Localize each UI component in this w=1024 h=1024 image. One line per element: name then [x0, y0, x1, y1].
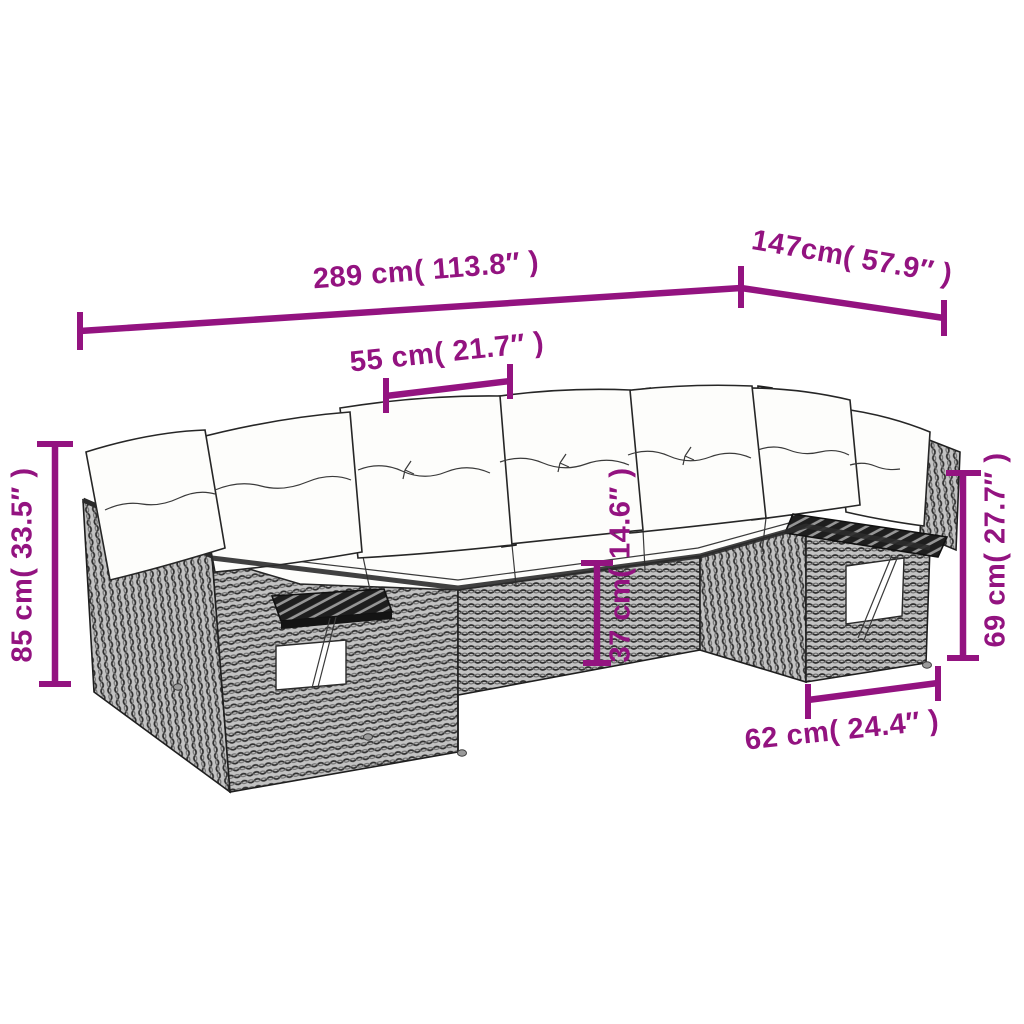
dimension-label-seat-height: 37 cm( 14.6″ ) [605, 468, 638, 663]
care-label-card [276, 640, 346, 690]
diagram-canvas: 289 cm( 113.8″ ) 147cm( 57.9″ ) 55 cm( 2… [0, 0, 1024, 1024]
dimension-line-total-height [37, 444, 73, 684]
dimension-label-armrest-height: 69 cm( 27.7″ ) [980, 453, 1013, 648]
product-diagram [0, 0, 1024, 1024]
dimension-line-total-depth [741, 288, 944, 336]
back-cushion [340, 396, 512, 558]
dimension-label-total-height: 85 cm( 33.5″ ) [7, 468, 40, 663]
